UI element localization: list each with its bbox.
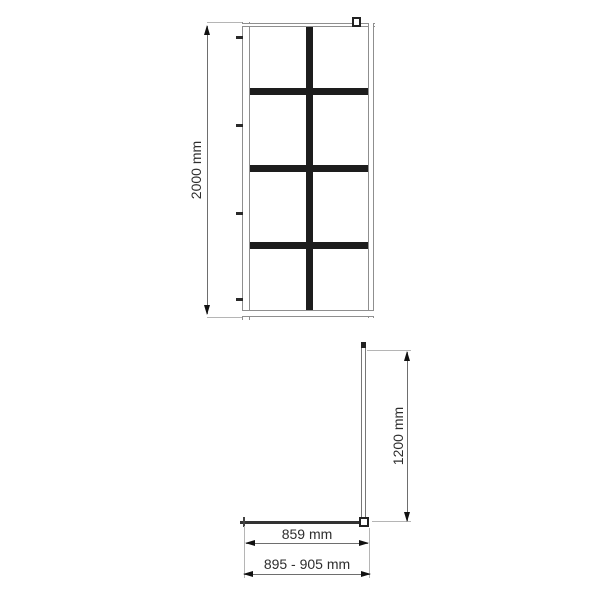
arrow-down-icon [204,305,210,315]
extension-line-bottom [207,317,245,318]
arrow-down-icon [404,512,410,522]
adjustment-width-dimension-line [244,574,370,575]
shower-screen-technical-drawing: 2000 mm 1200 mm [0,0,600,600]
height-dimension-line [207,26,208,314]
wall-profile [242,22,250,320]
fixing-tick [236,298,243,301]
extension-line-top [207,22,243,23]
arrow-right-icon [359,540,369,546]
glass-width-dimension-label: 859 mm [257,526,357,542]
arrow-left-icon [245,540,255,546]
bar-connector [359,517,369,527]
fixing-tick [236,36,243,39]
glass-width-dimension-line [246,543,368,544]
depth-dimension-line [407,352,408,521]
arrow-up-icon [204,25,210,35]
panel-bottom-edge [242,310,374,317]
adjustment-width-dimension-label: 895 - 905 mm [237,556,377,572]
fixing-tick [236,212,243,215]
arrow-up-icon [404,351,410,361]
panel-right-edge [368,23,374,318]
fixing-tick [236,124,243,127]
grid-bar-horizontal [250,165,368,172]
grid-bar-horizontal [250,242,368,249]
support-bar [361,348,366,520]
support-bar-clamp [352,17,361,27]
glass-panel-plan [240,521,361,524]
grid-bar-horizontal [250,88,368,95]
depth-dimension-label: 1200 mm [390,396,406,476]
height-dimension-label: 2000 mm [188,130,204,210]
